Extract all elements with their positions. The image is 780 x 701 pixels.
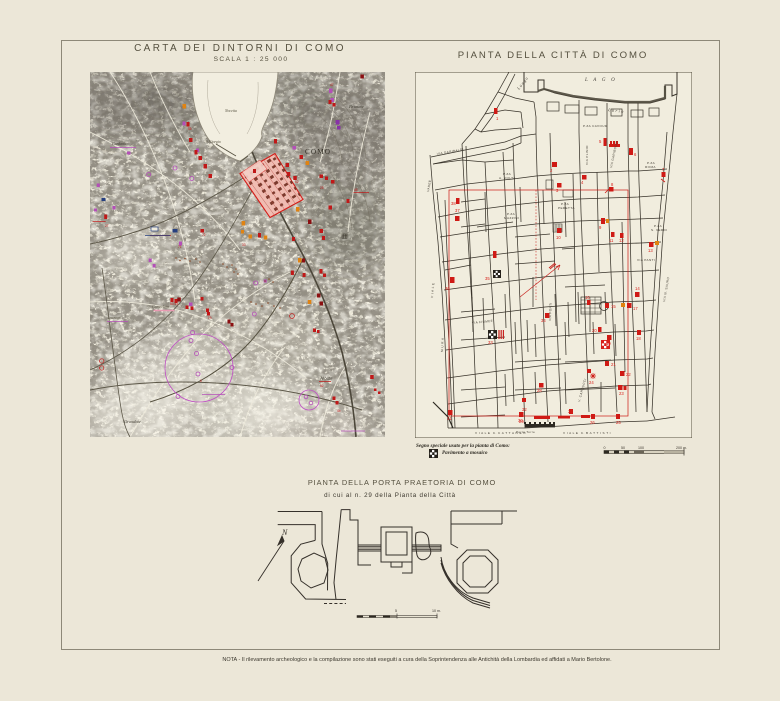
svg-text:4b: 4b <box>337 409 341 413</box>
svg-text:25: 25 <box>320 186 324 190</box>
svg-text:31: 31 <box>447 416 452 421</box>
svg-text:0: 0 <box>604 446 606 450</box>
svg-text:12: 12 <box>619 238 624 243</box>
svg-text:36: 36 <box>445 286 450 291</box>
svg-text:45: 45 <box>354 188 358 192</box>
svg-text:L A G O: L A G O <box>584 78 617 83</box>
svg-text:21: 21 <box>611 362 616 367</box>
svg-text:53 54: 53 54 <box>170 302 178 306</box>
svg-text:Grandate: Grandate <box>124 419 141 424</box>
svg-text:33: 33 <box>242 243 246 247</box>
svg-text:COMO: COMO <box>305 148 331 156</box>
svg-text:M U R A: M U R A <box>440 337 445 352</box>
svg-text:17: 17 <box>633 306 638 311</box>
svg-text:P.ZA CAVOUR: P.ZA CAVOUR <box>583 124 608 128</box>
svg-text:72: 72 <box>202 233 206 237</box>
svg-text:S. VERDI: S. VERDI <box>651 228 667 232</box>
svg-text:Nocetta: Nocetta <box>224 109 237 113</box>
svg-text:32: 32 <box>522 407 527 412</box>
svg-text:10: 10 <box>556 235 561 240</box>
svg-text:N: N <box>281 528 288 537</box>
svg-text:VIA PANTI: VIA PANTI <box>637 258 655 262</box>
svg-text:27: 27 <box>568 409 573 414</box>
svg-text:52: 52 <box>320 384 324 388</box>
svg-text:MAZZINI: MAZZINI <box>504 216 519 220</box>
svg-text:38: 38 <box>451 201 456 206</box>
svg-text:24: 24 <box>589 380 594 385</box>
svg-text:37: 37 <box>455 208 460 213</box>
svg-text:55: 55 <box>188 127 192 131</box>
svg-text:A. VOLTA: A. VOLTA <box>499 176 516 180</box>
svg-text:100: 100 <box>638 446 644 450</box>
svg-text:ROMA: ROMA <box>645 165 656 169</box>
svg-text:71: 71 <box>178 245 182 249</box>
svg-text:5: 5 <box>395 609 397 613</box>
svg-text:VIA PORTI: VIA PORTI <box>548 302 553 321</box>
svg-text:S.Giorgio: S.Giorgio <box>206 140 221 144</box>
svg-text:26: 26 <box>590 420 595 425</box>
svg-text:28: 28 <box>537 388 542 393</box>
svg-text:30: 30 <box>518 418 523 423</box>
svg-text:V I A L E C. B A T T I S T I: V I A L E C. B A T T I S T I <box>563 431 611 435</box>
svg-text:27: 27 <box>105 224 109 228</box>
svg-text:34: 34 <box>541 318 546 323</box>
svg-text:10 m.: 10 m. <box>432 609 441 613</box>
svg-text:33: 33 <box>488 340 493 345</box>
svg-text:19: 19 <box>606 341 611 346</box>
svg-text:15: 15 <box>611 304 616 309</box>
svg-text:18: 18 <box>636 336 641 341</box>
svg-text:Cardano: Cardano <box>112 141 126 146</box>
svg-text:14: 14 <box>635 286 640 291</box>
svg-text:19: 19 <box>208 316 212 320</box>
svg-text:6: 6 <box>200 379 202 383</box>
svg-text:62: 62 <box>295 180 299 184</box>
svg-text:PERETTA: PERETTA <box>558 206 575 210</box>
svg-text:11: 11 <box>609 238 614 243</box>
svg-text:47: 47 <box>330 83 334 87</box>
svg-text:Porta Torre: Porta Torre <box>516 430 535 434</box>
svg-text:22: 22 <box>626 372 631 377</box>
svg-text:23: 23 <box>619 391 624 396</box>
svg-text:Lazzago: Lazzago <box>107 316 121 320</box>
svg-text:25: 25 <box>616 420 621 425</box>
svg-text:Camerlata: Camerlata <box>152 304 169 309</box>
svg-text:200 m.: 200 m. <box>676 446 687 450</box>
svg-text:50: 50 <box>621 446 625 450</box>
svg-text:35: 35 <box>485 276 490 281</box>
svg-text:VIA PLINIO: VIA PLINIO <box>585 145 589 165</box>
svg-text:13: 13 <box>648 248 653 253</box>
svg-text:16: 16 <box>585 295 590 300</box>
svg-text:Brunate: Brunate <box>349 104 364 109</box>
svg-text:20: 20 <box>592 328 597 333</box>
